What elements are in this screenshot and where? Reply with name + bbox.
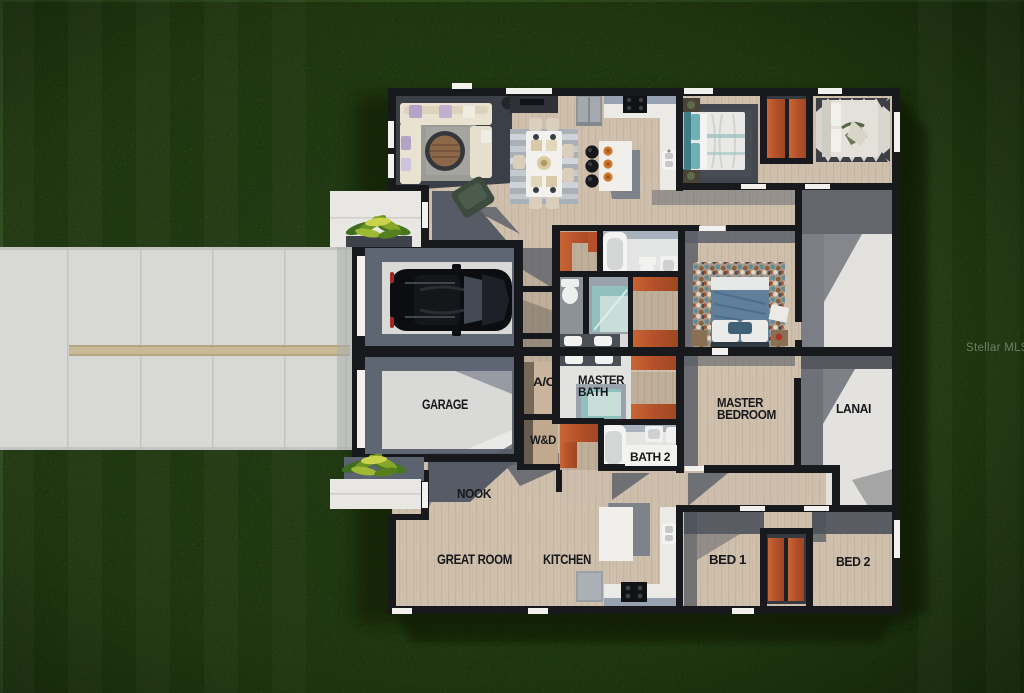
svg-text:Stellar MLS: Stellar MLS (966, 342, 1024, 354)
svg-text:KITCHEN: KITCHEN (543, 551, 591, 567)
svg-text:BATH 2: BATH 2 (630, 450, 671, 464)
svg-text:LANAI: LANAI (836, 402, 871, 416)
svg-text:NOOK: NOOK (457, 486, 492, 501)
svg-text:A/C: A/C (533, 375, 556, 389)
svg-text:GREAT ROOM: GREAT ROOM (437, 551, 512, 567)
svg-text:W&D: W&D (530, 433, 557, 447)
svg-text:BED 2: BED 2 (836, 554, 870, 569)
svg-text:GARAGE: GARAGE (422, 397, 468, 412)
svg-text:BATH: BATH (578, 385, 608, 399)
svg-text:BEDROOM: BEDROOM (717, 407, 776, 422)
svg-text:BED 1: BED 1 (709, 552, 746, 567)
